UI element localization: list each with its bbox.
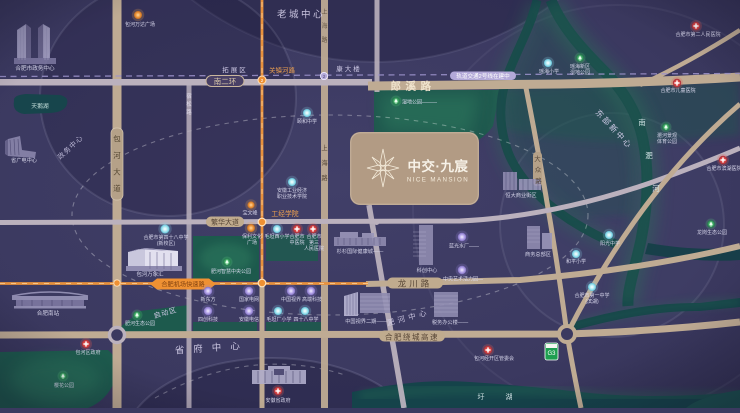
svg-text:海: 海 [321,158,328,167]
svg-text:合肥市滨湖医院: 合肥市滨湖医院 [706,165,740,172]
svg-text:安徽省政府: 安徽省政府 [265,397,290,404]
svg-text:毛坦西小学: 毛坦西小学 [264,233,289,240]
svg-text:圩: 圩 [478,393,485,401]
svg-text:(滨湖): (滨湖) [585,298,599,305]
svg-text:康大楼: 康大楼 [336,64,362,73]
svg-text:宿: 宿 [186,92,192,100]
svg-text:大: 大 [113,168,121,177]
svg-text:包河经开区管委会: 包河经开区管委会 [474,355,514,362]
svg-text:颐和中学: 颐和中学 [297,118,317,125]
svg-text:众: 众 [535,166,542,174]
svg-text:和平小学: 和平小学 [566,258,586,265]
svg-text:肥河生态公园: 肥河生态公园 [125,320,155,327]
svg-text:路: 路 [321,173,328,182]
svg-text:龙川路: 龙川路 [398,279,433,289]
svg-text:毛坦厂小学: 毛坦厂小学 [266,316,291,323]
svg-text:工经学院: 工经学院 [271,209,298,218]
svg-text:肥河智慧中央公园: 肥河智慧中央公园 [211,268,251,275]
svg-text:合肥绕城高速: 合肥绕城高速 [385,332,439,342]
svg-text:商务总部区: 商务总部区 [525,250,551,258]
svg-text:中央艺术活力园—: 中央艺术活力园— [443,276,483,283]
svg-text:广场: 广场 [247,239,257,246]
svg-text:税务办公楼——: 税务办公楼—— [432,318,469,326]
svg-text:中医院: 中医院 [289,239,304,246]
svg-text:拓展区: 拓展区 [222,65,248,74]
svg-text:合肥市儿童医院: 合肥市儿童医院 [660,87,695,94]
svg-text:南二环: 南二环 [214,76,237,86]
svg-text:上: 上 [321,143,327,152]
svg-text:高端科技: 高端科技 [302,296,322,303]
svg-text:龙岗生态公园: 龙岗生态公园 [697,229,727,236]
svg-text:NICE MANSION: NICE MANSION [407,177,469,184]
svg-text:合肥机场快速路: 合肥机场快速路 [161,281,205,289]
svg-text:合肥南站: 合肥南站 [37,309,60,317]
svg-text:松: 松 [186,100,192,108]
svg-text:中国视界二期——: 中国视界二期—— [345,317,387,325]
svg-text:(新校区): (新校区) [157,240,176,247]
svg-text:国家电网: 国家电网 [239,296,259,303]
svg-text:南: 南 [638,117,646,127]
svg-text:湖: 湖 [506,392,513,401]
svg-text:中国视界: 中国视界 [281,296,301,303]
svg-text:路: 路 [321,36,327,44]
svg-text:路: 路 [186,108,192,116]
svg-text:瑶海小学: 瑶海小学 [539,68,559,75]
svg-text:海: 海 [321,22,327,30]
svg-text:包河区政府: 包河区政府 [75,349,100,356]
svg-text:湿地公园———: 湿地公园——— [402,99,437,106]
svg-text:包河万象汇: 包河万象汇 [137,270,165,278]
svg-text:宝文峰: 宝文峰 [242,210,257,217]
svg-text:四创科技: 四创科技 [198,316,218,323]
svg-text:阳光中学: 阳光中学 [600,240,620,247]
svg-text:职业技术学院: 职业技术学院 [277,193,307,200]
svg-text:郎溪路: 郎溪路 [391,80,436,93]
svg-text:合肥市政务中心: 合肥市政务中心 [15,64,55,72]
svg-text:科创中心: 科创中心 [417,266,438,274]
svg-text:道: 道 [113,184,121,193]
svg-text:樱花公园: 樱花公园 [54,382,74,389]
svg-text:新东方: 新东方 [200,296,215,303]
svg-text:四十八中学: 四十八中学 [293,316,318,323]
svg-text:蓝光水厂——: 蓝光水厂—— [449,243,479,250]
svg-text:淝: 淝 [645,151,653,160]
svg-text:大: 大 [534,154,541,163]
svg-text:包河万达广场: 包河万达广场 [125,21,155,28]
svg-text:湿地公园: 湿地公园 [570,69,590,76]
svg-text:河: 河 [113,151,121,160]
svg-text:老城中心: 老城中心 [277,9,325,21]
svg-text:恒大商业街区: 恒大商业街区 [505,191,536,199]
svg-text:繁华大道: 繁华大道 [211,218,239,227]
svg-text:安徽电信: 安徽电信 [239,316,259,323]
svg-text:省广电中心: 省广电中心 [11,156,37,164]
svg-text:人民医院: 人民医院 [304,245,324,252]
svg-text:轨道交通2号线在建中: 轨道交通2号线在建中 [456,72,510,80]
svg-text:路: 路 [535,176,542,185]
svg-text:中交·九宸: 中交·九宸 [408,158,469,174]
svg-text:G3: G3 [547,351,556,357]
svg-text:杉杉国际健康城——: 杉杉国际健康城—— [337,247,385,255]
svg-text:天鹅湖: 天鹅湖 [31,102,49,110]
svg-text:河: 河 [652,184,660,193]
svg-text:体育公园: 体育公园 [657,138,677,145]
svg-text:合肥市第二人民医院: 合肥市第二人民医院 [675,31,720,38]
svg-text:关镇河路: 关镇河路 [269,66,296,75]
svg-text:包: 包 [113,135,121,144]
